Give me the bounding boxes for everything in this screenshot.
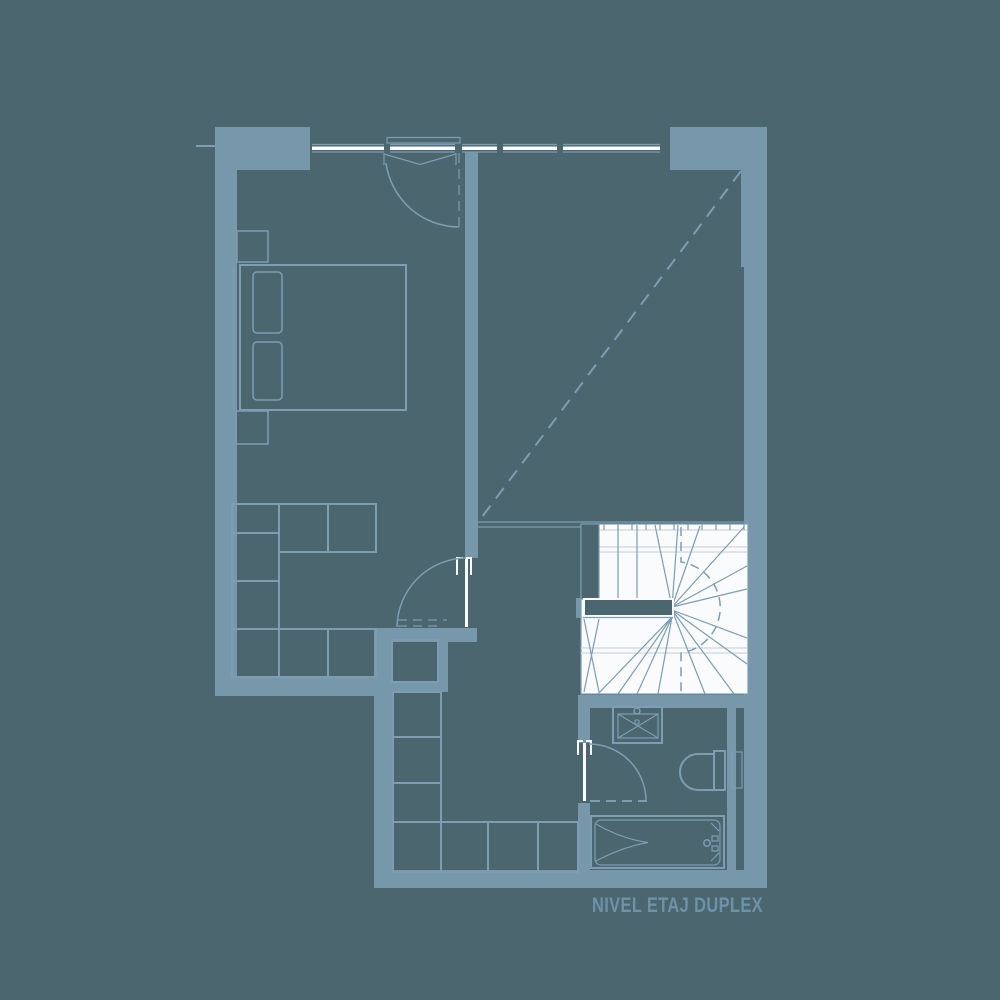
floor-plan: NIVEL ETAJ DUPLEX bbox=[0, 0, 1000, 1000]
partition-wall bbox=[465, 152, 478, 558]
stair-handrail bbox=[584, 599, 673, 616]
winder-stairs bbox=[581, 524, 748, 694]
plan-title: NIVEL ETAJ DUPLEX bbox=[592, 893, 763, 917]
stair-landing-notch bbox=[581, 524, 599, 599]
window-glazing bbox=[312, 147, 663, 151]
